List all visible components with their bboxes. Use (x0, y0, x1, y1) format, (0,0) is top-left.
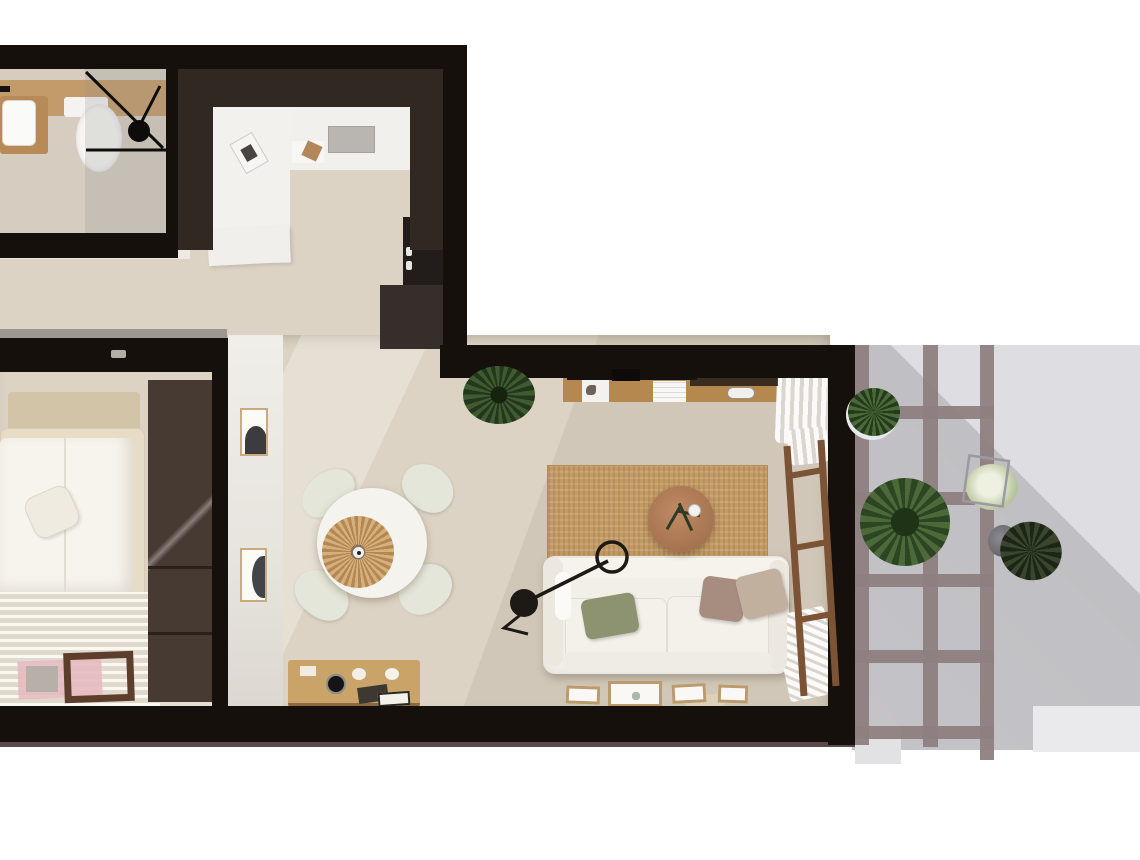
gallery-wall (228, 335, 283, 708)
wall-frame-top (240, 408, 268, 456)
balcony-plant-white (966, 464, 1018, 510)
desk-speaker (612, 369, 640, 381)
wall-entry-west (178, 69, 213, 250)
wall-entry-north (213, 69, 443, 107)
living-plant (463, 366, 535, 424)
door-handle (111, 350, 126, 358)
record-player (326, 674, 346, 694)
faucet (0, 86, 10, 92)
wall-north (0, 45, 467, 69)
balcony-plant-small (848, 388, 900, 436)
desk-chair-seat (727, 387, 755, 399)
wall-bedroom-east (212, 338, 228, 708)
coffee-cup (688, 504, 701, 517)
headboard (8, 392, 140, 432)
lumbar-pillow (555, 572, 571, 620)
sofa-front-edge (563, 652, 771, 672)
wall-south (0, 706, 855, 742)
balcony-plant-large (860, 478, 950, 566)
wall-bathroom-south (0, 233, 178, 258)
wall-entry-east (443, 45, 467, 350)
wall-bathroom-east (166, 69, 178, 243)
trellis-rung (855, 574, 994, 587)
leaning-frame (672, 683, 707, 704)
table-decor (352, 546, 365, 559)
kitchen-floor (290, 170, 410, 243)
trellis-rung (855, 726, 994, 739)
shower-glass-panel (85, 69, 168, 235)
kitchen-counter (207, 226, 291, 266)
bathroom-sink (2, 100, 36, 146)
gray-rug-patch (26, 666, 58, 692)
console-bowl (352, 668, 366, 680)
trellis-rung (855, 650, 994, 663)
wall-frame-bottom (240, 548, 267, 602)
balcony-step (1033, 706, 1140, 752)
desk-sketchpad (582, 380, 609, 402)
coffee-table (648, 486, 714, 552)
wardrobe (148, 380, 212, 702)
leaning-frame (566, 685, 601, 704)
leaning-frame (718, 684, 749, 703)
kitchen-base-unit (380, 285, 443, 349)
entry-book (292, 141, 324, 163)
curtain (786, 426, 830, 466)
wall-entry-inner (410, 69, 443, 250)
desk-notebook (653, 381, 686, 402)
leaning-frame-tree (608, 681, 662, 707)
console-book (378, 691, 411, 707)
console-bowl (385, 668, 399, 680)
bed-bench (63, 651, 135, 703)
entry-cabinet (328, 126, 375, 153)
floor-plan-render (0, 0, 1140, 860)
console-decor (300, 666, 316, 676)
